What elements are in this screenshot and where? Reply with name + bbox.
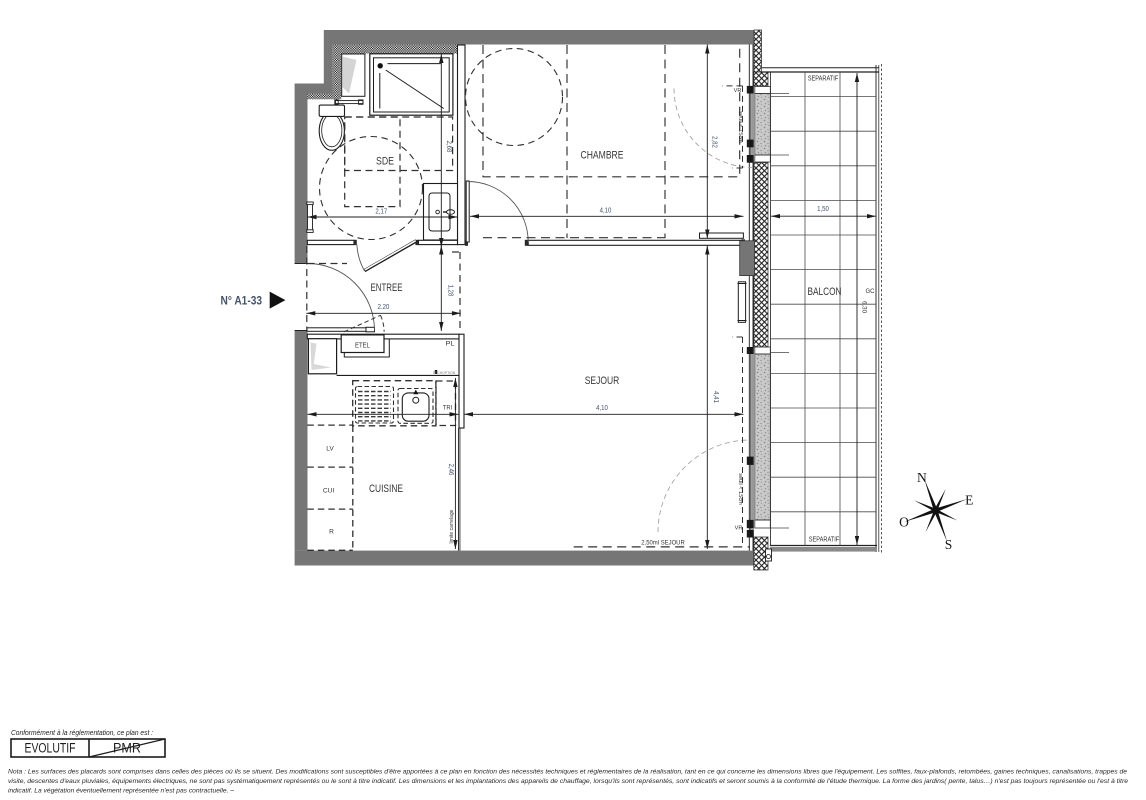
svg-text:4,10: 4,10 xyxy=(596,405,608,412)
svg-text:SDE: SDE xyxy=(376,156,394,168)
svg-text:2,46: 2,46 xyxy=(447,464,454,476)
svg-text:SEPARATIF: SEPARATIF xyxy=(809,535,840,544)
svg-text:TRI: TRI xyxy=(443,405,453,412)
svg-text:visite, descentes d'eaux pluvi: visite, descentes d'eaux pluviales, équi… xyxy=(8,778,1128,785)
svg-text:1,28: 1,28 xyxy=(446,285,453,297)
svg-text:SECHOPTION: SECHOPTION xyxy=(433,371,456,375)
svg-text:CHAMBRE: CHAMBRE xyxy=(581,150,624,162)
svg-text:VR: VR xyxy=(735,526,743,532)
svg-text:Conformément à la réglementati: Conformément à la réglementation, ce pla… xyxy=(11,728,153,737)
svg-text:R: R xyxy=(329,529,334,536)
svg-text:E: E xyxy=(965,493,973,508)
svg-text:1,50: 1,50 xyxy=(817,206,829,213)
svg-text:CUI: CUI xyxy=(323,488,335,495)
svg-text:2.20: 2.20 xyxy=(378,304,390,311)
svg-text:LV: LV xyxy=(326,446,334,453)
svg-text:CUISINE: CUISINE xyxy=(369,483,403,495)
svg-text:N° A1-33: N° A1-33 xyxy=(221,296,263,308)
svg-text:indicatif. La végétation évent: indicatif. La végétation éventuellement … xyxy=(8,788,234,795)
svg-text:limite carrelage: limite carrelage xyxy=(449,509,455,543)
svg-text:O: O xyxy=(899,515,909,530)
svg-text:4,41: 4,41 xyxy=(712,391,719,403)
svg-text:2,82: 2,82 xyxy=(710,136,717,148)
svg-text:EVOLUTIF: EVOLUTIF xyxy=(25,741,76,756)
svg-text:GC: GC xyxy=(866,289,876,295)
svg-text:2,17: 2,17 xyxy=(375,209,387,216)
svg-text:PL: PL xyxy=(446,341,455,348)
svg-text:S: S xyxy=(945,537,953,552)
svg-text:SEPARATIF: SEPARATIF xyxy=(808,74,839,83)
svg-text:N: N xyxy=(917,470,927,485)
svg-text:SEJOUR: SEJOUR xyxy=(585,375,620,387)
svg-text:Nota : Les surfaces des placar: Nota : Les surfaces des placards sont co… xyxy=(8,769,1127,776)
svg-text:VR: VR xyxy=(734,88,742,94)
svg-text:6,30: 6,30 xyxy=(861,301,868,314)
svg-text:BALCON: BALCON xyxy=(808,286,842,298)
svg-text:ENTREE: ENTREE xyxy=(371,282,403,294)
svg-text:4,10: 4,10 xyxy=(600,208,612,215)
svg-text:ETEL: ETEL xyxy=(355,341,370,350)
svg-text:2,50ml SEJOUR: 2,50ml SEJOUR xyxy=(641,540,685,547)
svg-text:2,68: 2,68 xyxy=(445,141,452,153)
